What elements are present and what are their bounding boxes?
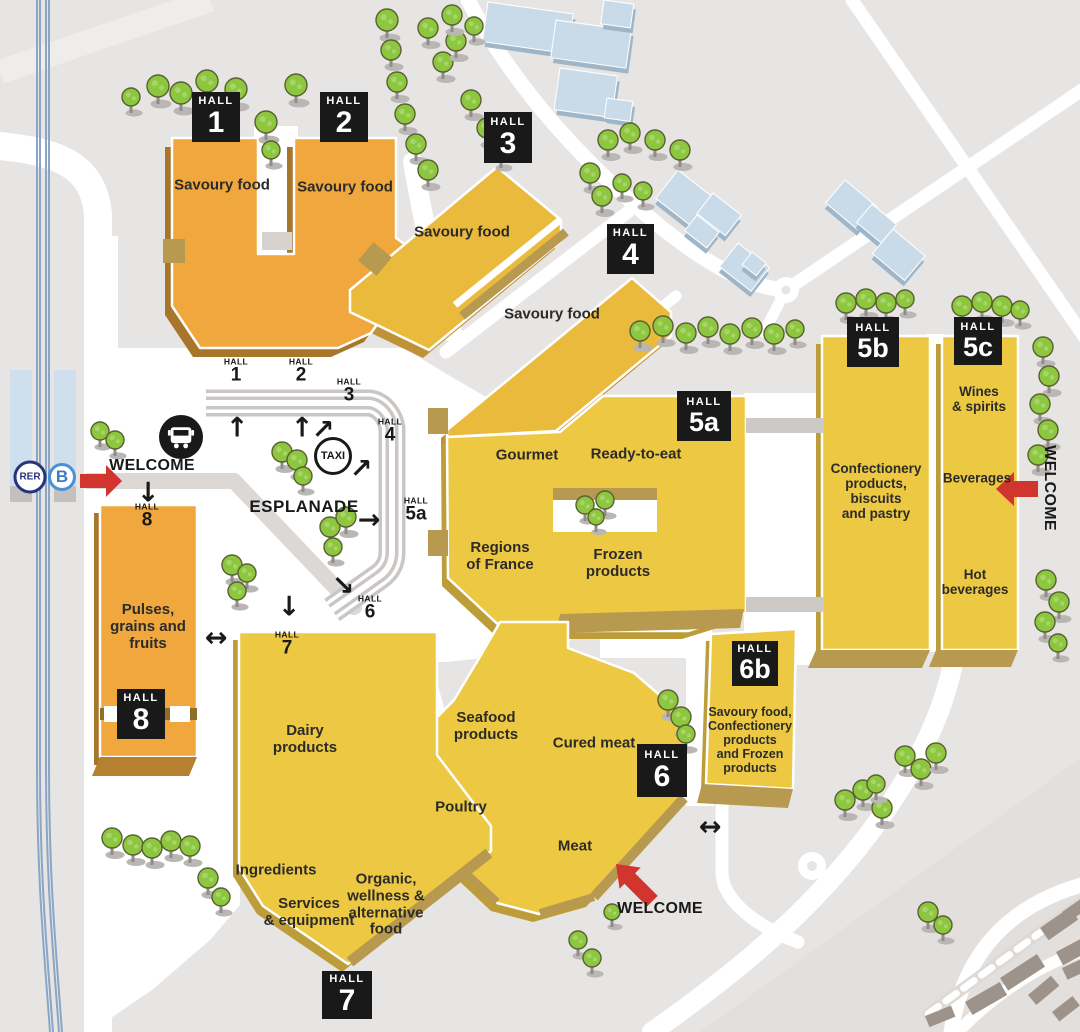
mini-hall-1-number: 1	[224, 366, 248, 383]
corridor-threshold	[746, 418, 824, 433]
hall-5c-badge-label: HALL	[954, 322, 1002, 333]
hall-5a-frozen-products: Frozen products	[586, 547, 650, 581]
mini-hall-6: HALL 6	[358, 596, 382, 621]
hall-4-badge-number: 4	[607, 240, 654, 270]
taxi-icon: TAXI	[314, 437, 352, 475]
welcome-east-label: WELCOME	[1040, 445, 1058, 531]
roundabout-south-center	[807, 861, 817, 871]
hall-7-ingredients: Ingredients	[236, 863, 317, 880]
connector-stub	[428, 408, 448, 434]
hall-5a-ready-to-eat: Ready-to-eat	[591, 447, 682, 464]
hall-5b-badge-label: HALL	[847, 323, 899, 334]
arrow-up-icon: ↑	[226, 413, 249, 444]
hall-5c-south-edge	[929, 650, 1018, 667]
connector-stub	[428, 530, 448, 556]
hall-1-2-stairs	[262, 232, 292, 250]
hall-7-dairy-products: Dairy products	[273, 723, 337, 757]
tree-icon	[376, 9, 400, 42]
hall-5a-badge-label: HALL	[677, 397, 731, 408]
arrow-up-icon: ↑	[291, 413, 314, 444]
arrow-left-right-icon: ↔	[205, 623, 228, 654]
rer-label: RER	[19, 472, 40, 483]
hall-5a-badge-number: 5a	[677, 409, 731, 436]
hall-1-badge-number: 1	[192, 108, 240, 138]
rer-badge: RER	[14, 461, 47, 494]
mini-hall-4: HALL 4	[378, 419, 402, 444]
hall-3-badge-label: HALL	[484, 117, 532, 128]
mini-hall-5a-number: 5a	[404, 505, 428, 522]
hall-6-badge: HALL 6	[637, 744, 687, 797]
tree-icon	[147, 75, 171, 108]
hall-3-category: Savoury food	[414, 225, 510, 242]
taxi-label: TAXI	[321, 450, 345, 462]
arrow-right-icon: →	[358, 505, 381, 536]
hall-5c-hot-beverages: Hot beverages	[942, 567, 1009, 597]
arrow-left-right-icon: ↔	[699, 812, 722, 843]
hall-2-badge-number: 2	[320, 108, 368, 138]
hall-4-category: Savoury food	[504, 307, 600, 324]
hall-8-gap-east	[170, 706, 190, 722]
roundabout-north-center	[782, 286, 791, 295]
hall-5c-beverages: Beverages	[943, 470, 1011, 485]
building-icon	[600, 0, 637, 33]
mini-hall-8-number: 8	[135, 511, 159, 528]
hall-5a-gourmet: Gourmet	[496, 448, 559, 465]
hall-8-badge: HALL 8	[117, 689, 165, 739]
mini-hall-2: HALL 2	[289, 359, 313, 384]
hall-6b-badge: HALL 6b	[732, 641, 778, 686]
welcome-south-label: WELCOME	[617, 900, 703, 918]
hall-6-seafood-products: Seafood products	[454, 710, 518, 744]
hall-7-badge: HALL 7	[322, 971, 372, 1019]
hall-4-badge: HALL 4	[607, 224, 654, 274]
hall-5b-south-edge	[808, 650, 930, 668]
tree-icon	[170, 82, 194, 115]
hall-7-badge-number: 7	[322, 986, 372, 1016]
mini-hall-4-number: 4	[378, 426, 402, 443]
arrow-up-right-icon: ↗	[350, 454, 373, 485]
hall-6b-badge-number: 6b	[732, 656, 778, 683]
mini-hall-5a: HALL 5a	[404, 498, 428, 523]
mini-hall-3: HALL 3	[337, 379, 361, 404]
line-b-label: B	[56, 467, 68, 487]
hall-5c-wines-spirits: Wines & spirits	[952, 384, 1006, 414]
corridor-5a-5b	[744, 393, 828, 665]
hall-6-poultry: Poultry	[435, 800, 487, 817]
hall-5c-badge-number: 5c	[954, 334, 1002, 361]
arrow-down-icon: ↓	[278, 592, 301, 623]
esplanade-label: ESPLANADE	[249, 497, 358, 517]
line-b-badge: B	[48, 463, 76, 491]
hall-1-category: Savoury food	[174, 178, 270, 195]
hall-6-badge-label: HALL	[637, 750, 687, 761]
hall-6-badge-number: 6	[637, 762, 687, 792]
hall-5a-badge: HALL 5a	[677, 391, 731, 441]
hall-7-organic-wellness: Organic, wellness & alternative food	[347, 871, 425, 938]
mini-hall-7-number: 7	[275, 639, 299, 656]
hall-5b-badge: HALL 5b	[847, 317, 899, 367]
tree-icon	[285, 74, 309, 107]
hall-8-badge-number: 8	[117, 705, 165, 735]
hall-5c-badge: HALL 5c	[954, 317, 1002, 365]
tree-icon	[255, 111, 279, 144]
hall-6-cured-meat: Cured meat	[553, 736, 636, 753]
mini-hall-6-number: 6	[358, 603, 382, 620]
mini-hall-3-number: 3	[337, 386, 361, 403]
mini-hall-7: HALL 7	[275, 632, 299, 657]
hall-3-badge: HALL 3	[484, 112, 532, 163]
hall-8-south-edge	[92, 757, 197, 776]
mini-hall-1: HALL 1	[224, 359, 248, 384]
hall-2-category: Savoury food	[297, 180, 393, 197]
corridor-threshold	[746, 597, 824, 612]
arrow-down-right-icon: ↘	[332, 571, 355, 602]
hall-5b-category: Confectionery products, biscuits and pas…	[831, 461, 922, 521]
hall-5b-badge-number: 5b	[847, 335, 899, 362]
exhibition-site-map: HALL 1 HALL 2 HALL 3 HALL 4 HALL 5a HALL…	[0, 0, 1080, 1032]
hall-1-badge: HALL 1	[192, 92, 240, 142]
hall-7-services-equipment: Services & equipment	[264, 896, 355, 930]
bus-icon	[159, 415, 203, 459]
hall-6b-category: Savoury food, Confectionery products and…	[708, 705, 792, 775]
hall-6-meat: Meat	[558, 839, 592, 856]
bus-glyph	[167, 425, 195, 450]
welcome-west-label: WELCOME	[109, 457, 195, 475]
hall-2-badge: HALL 2	[320, 92, 368, 142]
arrow-down-icon: ↓	[137, 478, 160, 509]
connector-stub	[163, 239, 185, 263]
hall-8-category: Pulses, grains and fruits	[110, 602, 186, 652]
hall-5a-regions-of-france: Regions of France	[466, 540, 534, 574]
mini-hall-2-number: 2	[289, 366, 313, 383]
hall-3-badge-number: 3	[484, 129, 532, 159]
